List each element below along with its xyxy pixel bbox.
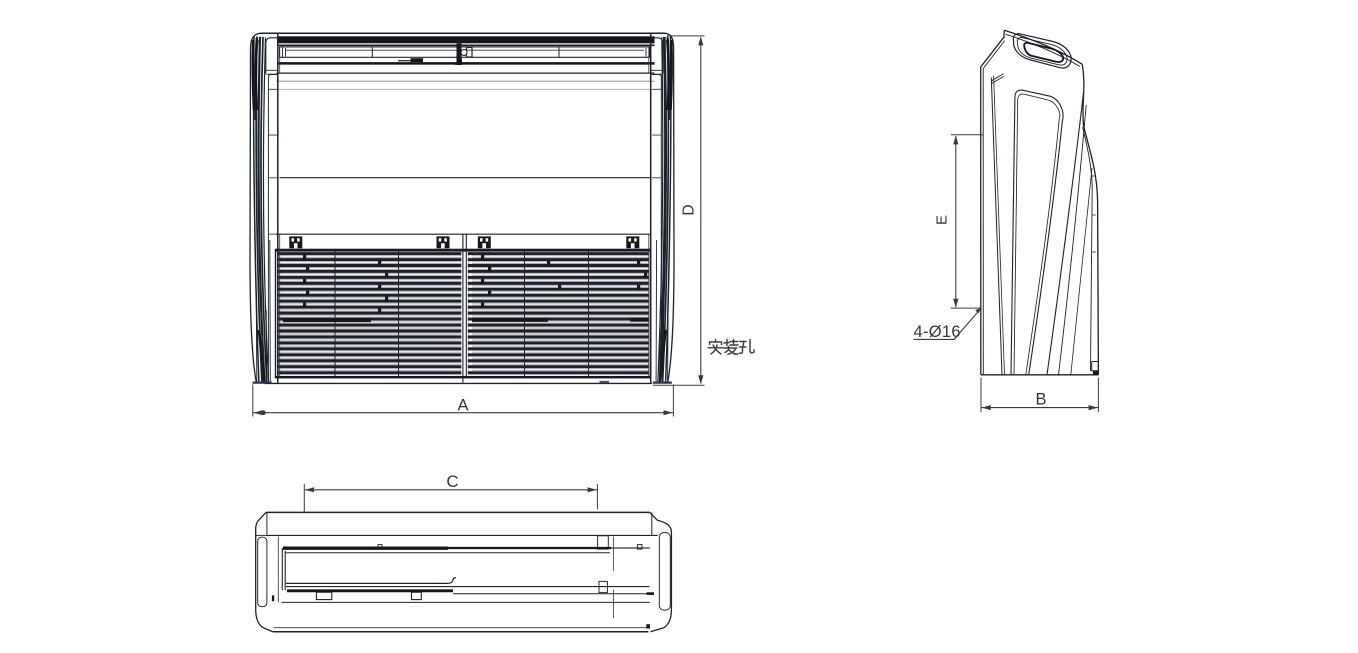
- svg-text:D: D: [681, 204, 698, 215]
- svg-text:C: C: [446, 472, 458, 491]
- svg-text:B: B: [1035, 391, 1046, 409]
- svg-text:A: A: [457, 397, 468, 415]
- svg-text:4-Ø16: 4-Ø16: [914, 323, 961, 341]
- svg-text:E: E: [934, 215, 951, 225]
